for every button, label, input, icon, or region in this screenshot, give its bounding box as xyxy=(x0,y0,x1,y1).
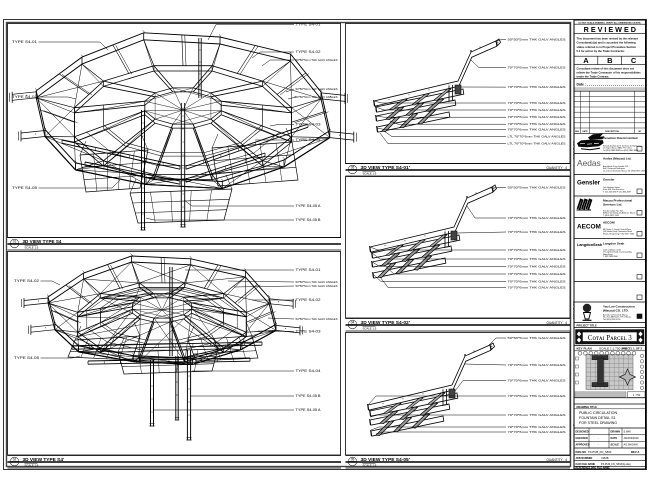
svg-text:TYPE S4-02: TYPE S4-02 xyxy=(12,95,37,99)
svg-text:TYPE S4-01: TYPE S4-01 xyxy=(12,40,37,44)
svg-text:C: C xyxy=(631,56,637,65)
svg-text:05: 05 xyxy=(351,166,355,170)
svg-text:Consultant review of this docu: Consultant review of this document does … xyxy=(577,67,635,71)
svg-text:B: B xyxy=(607,56,613,65)
svg-text:TYPE S4-05: TYPE S4-05 xyxy=(12,186,37,190)
svg-text:LTL 70*70*6mm THK GALV ANGLES: LTL 70*70*6mm THK GALV ANGLES xyxy=(508,135,566,139)
svg-text:TYPE S4-03: TYPE S4-03 xyxy=(296,123,321,127)
svg-text:SCALE: SCALE xyxy=(611,444,620,447)
svg-text:DRAWN: DRAWN xyxy=(611,430,621,433)
svg-text:TYPE S4-05 B: TYPE S4-05 B xyxy=(296,218,321,222)
svg-text:DESCRIPTION: DESCRIPTION xyxy=(605,131,619,133)
svg-text:70*70*6mm THK GALV ANGLES: 70*70*6mm THK GALV ANGLES xyxy=(508,85,566,89)
svg-text:REV: REV xyxy=(575,131,580,133)
svg-text:3D VIEW TYPE S4-05': 3D VIEW TYPE S4-05' xyxy=(361,457,410,462)
svg-text:relieve the Trade Contractor o: relieve the Trade Contractor of his resp… xyxy=(577,71,642,75)
svg-text:R E V I E W E D: R E V I E W E D xyxy=(584,25,636,34)
svg-text:QUANTITY : 4: QUANTITY : 4 xyxy=(547,166,568,170)
svg-text:DWG NO: DWG NO xyxy=(576,451,587,454)
svg-text:TYPE S4-05 A: TYPE S4-05 A xyxy=(296,204,322,208)
svg-text:70*70*6mm THK GALV ANGLES: 70*70*6mm THK GALV ANGLES xyxy=(508,394,566,398)
svg-text:Shatin, Hong Kong T: 852 2317: Shatin, Hong Kong T: 852 2317 7000 xyxy=(603,232,634,235)
svg-text:Consultant(s)(s) and is accord: Consultant(s)(s) and is accorded the fol… xyxy=(577,41,636,45)
svg-text:70*70*6mm THK GALV ANGLES: 70*70*6mm THK GALV ANGLES xyxy=(508,216,566,220)
svg-text:LTL 70*70*6mm THK GALV ANGLES: LTL 70*70*6mm THK GALV ANGLES xyxy=(508,142,566,146)
svg-text:TYPE S4-05 B: TYPE S4-05 B xyxy=(296,394,321,398)
svg-text:70*70*6mm THK GALV ANGLES: 70*70*6mm THK GALV ANGLES xyxy=(508,122,566,126)
svg-text:DATE: DATE xyxy=(582,130,588,133)
svg-text:Tel: (853) 2870 0790: Tel: (853) 2870 0790 xyxy=(603,319,620,321)
svg-text:QUANTITY : 4: QUANTITY : 4 xyxy=(547,458,568,462)
svg-text:TYPE S4-04: TYPE S4-04 xyxy=(296,369,321,373)
svg-text:70*70*6mm THK GALV ANGLES: 70*70*6mm THK GALV ANGLES xyxy=(508,280,566,284)
svg-text:TYPE S4-01: TYPE S4-01 xyxy=(296,268,321,272)
svg-text:01: 01 xyxy=(13,240,17,244)
svg-text:P3-PUB_FD_S504: P3-PUB_FD_S504 xyxy=(588,450,612,454)
svg-text:DRAWING TITLE: DRAWING TITLE xyxy=(577,405,598,409)
svg-text:70*70*6mm THK GALV ANGLES: 70*70*6mm THK GALV ANGLES xyxy=(508,101,566,105)
svg-text:CAD FILE NAME: CAD FILE NAME xyxy=(576,463,596,466)
svg-text:3D VIEW TYPE S4: 3D VIEW TYPE S4 xyxy=(23,239,63,244)
svg-text:70*70*6mm THK GALV ANGLES: 70*70*6mm THK GALV ANGLES xyxy=(508,257,566,261)
svg-text:50*50*5mm THK GALV ANGLES: 50*50*5mm THK GALV ANGLES xyxy=(296,87,338,91)
svg-text:70*70*6mm THK GALV ANGLES: 70*70*6mm THK GALV ANGLES xyxy=(508,66,566,70)
svg-text:TYPE S4-05: TYPE S4-05 xyxy=(14,356,39,360)
svg-text:70*70*6mm THK GALV ANGLES: 70*70*6mm THK GALV ANGLES xyxy=(508,425,566,429)
svg-text:PARCEL 1, OF 3: PARCEL 1, OF 3 xyxy=(622,347,642,351)
svg-text:DESIGNED: DESIGNED xyxy=(576,430,589,433)
svg-text:SCALE 1:5: SCALE 1:5 xyxy=(363,327,377,331)
svg-text:70*70*6mm THK GALV ANGLES: 70*70*6mm THK GALV ANGLES xyxy=(508,230,566,234)
svg-text:70*70*6mm THK GALV ANGLES: 70*70*6mm THK GALV ANGLES xyxy=(508,413,566,417)
svg-text:3D VIEW TYPE S4-01': 3D VIEW TYPE S4-01' xyxy=(361,165,410,170)
svg-text:SCALE 1:5: SCALE 1:5 xyxy=(363,172,377,176)
svg-text:Gensler: Gensler xyxy=(577,180,601,187)
svg-text:3D VIEW TYPE S4-02': 3D VIEW TYPE S4-02' xyxy=(361,320,410,325)
svg-text:-: - xyxy=(598,444,599,447)
svg-text:70*70*6mm THK GALV ANGLES: 70*70*6mm THK GALV ANGLES xyxy=(508,430,566,434)
svg-text:12 andar, 1201-1202, Macau Te: 12 andar, 1201-1202, Macau Tel: (853) 28… xyxy=(603,169,645,172)
svg-text:S.WAI: S.WAI xyxy=(624,429,632,433)
svg-text:50*50*5mm THK GALV ANGLES: 50*50*5mm THK GALV ANGLES xyxy=(508,186,566,190)
svg-text:70*70*6mm THK GALV ANGLES: 70*70*6mm THK GALV ANGLES xyxy=(508,115,566,119)
svg-text:REV A: REV A xyxy=(631,450,639,454)
svg-text:P3-PUB_FD_S503(A).dwg: P3-PUB_FD_S503(A).dwg xyxy=(601,463,631,466)
svg-text:Services Ltd.: Services Ltd. xyxy=(603,202,622,206)
svg-text:FOUNTAIN DETAIL S1: FOUNTAIN DETAIL S1 xyxy=(579,416,616,420)
svg-text:APPROVED: APPROVED xyxy=(576,444,590,447)
svg-text:70*70*6mm THK GALV ANGLES: 70*70*6mm THK GALV ANGLES xyxy=(508,265,566,269)
svg-text:Date :: Date : xyxy=(577,83,586,87)
svg-text:Aedas (Macau) Ltd.: Aedas (Macau) Ltd. xyxy=(603,157,632,161)
svg-text:LangdonSeah: LangdonSeah xyxy=(577,243,603,247)
svg-text:KEY PLAN: KEY PLAN xyxy=(577,347,592,351)
svg-text:REFERENCE DRG FILE NAME: REFERENCE DRG FILE NAME xyxy=(576,467,611,470)
svg-text:QUANTITY : 4: QUANTITY : 4 xyxy=(547,321,568,325)
svg-text:70*70*6mm THK GALV ANGLES: 70*70*6mm THK GALV ANGLES xyxy=(508,379,566,383)
svg-text:50*50*5mm THK GALV ANGLES: 50*50*5mm THK GALV ANGLES xyxy=(296,284,338,288)
svg-text:TYPE S4-05 A: TYPE S4-05 A xyxy=(296,408,322,412)
svg-text:50*50*5mm THK GALV ANGLES: 50*50*5mm THK GALV ANGLES xyxy=(296,58,338,62)
svg-text:AECOM: AECOM xyxy=(603,221,615,225)
svg-text:70*70*6mm THK GALV ANGLES: 70*70*6mm THK GALV ANGLES xyxy=(508,363,566,367)
svg-text:under the Trade Contract.: under the Trade Contract. xyxy=(577,75,610,79)
svg-text:SCALE 1:5: SCALE 1:5 xyxy=(363,464,377,468)
svg-text:Venetian Orient Limited: Venetian Orient Limited xyxy=(603,136,638,140)
svg-text:DATE: DATE xyxy=(611,437,618,440)
svg-text:TYPE S4-02: TYPE S4-02 xyxy=(14,279,39,283)
svg-text:05: 05 xyxy=(351,458,355,462)
svg-text:CHECKED: CHECKED xyxy=(576,437,589,440)
svg-text:3152B: 3152B xyxy=(601,456,609,460)
svg-text:JOB NUMBER: JOB NUMBER xyxy=(576,457,593,460)
svg-text:PUBLIC CIRCULATION: PUBLIC CIRCULATION xyxy=(579,411,617,415)
svg-text:(Macau) CO. LTD.: (Macau) CO. LTD. xyxy=(603,308,629,312)
svg-text:50*50*5mm THK GALV ANGLES: 50*50*5mm THK GALV ANGLES xyxy=(296,317,338,321)
svg-text:Langdon Seah: Langdon Seah xyxy=(603,242,624,246)
svg-text:70*70*6mm THK GALV ANGLES: 70*70*6mm THK GALV ANGLES xyxy=(508,108,566,112)
svg-text:70*70*6mm THK GALV ANGLES: 70*70*6mm THK GALV ANGLES xyxy=(508,286,566,290)
svg-text:JAN/03/2019: JAN/03/2019 xyxy=(624,436,640,440)
svg-text:FOR STEEL DRAWING: FOR STEEL DRAWING xyxy=(579,421,617,425)
svg-text:T: (853) 2871 5995: T: (853) 2871 5995 xyxy=(603,215,619,217)
svg-text:5.4 for action by the Trade Co: 5.4 for action by the Trade Contractor. xyxy=(577,49,626,53)
svg-text:TYPE S4-02: TYPE S4-02 xyxy=(296,50,321,54)
svg-text:T: 415.433.3700 F: 415.836.45: T: 415.433.3700 F: 415.836.4599 xyxy=(603,191,631,193)
svg-text:TYPE S4-01: TYPE S4-01 xyxy=(296,23,321,27)
svg-text:PROJECT TITLE: PROJECT TITLE xyxy=(577,323,597,327)
svg-text:TYPE S4-02: TYPE S4-02 xyxy=(296,298,321,302)
svg-text:50*50*5mm THK GALV ANGLES: 50*50*5mm THK GALV ANGLES xyxy=(508,336,566,340)
svg-text:SCALE 1:5: SCALE 1:5 xyxy=(25,464,39,468)
svg-text:T: 852 2830 3500: T: 852 2830 3500 xyxy=(603,256,618,258)
svg-text:70*70*6mm THK GALV ANGLES: 70*70*6mm THK GALV ANGLES xyxy=(508,248,566,252)
svg-text:This document has been revised: This document has been revised by the re… xyxy=(577,37,638,41)
svg-text:50*50*5mm THK GALV ANGLES: 50*50*5mm THK GALV ANGLES xyxy=(508,37,566,41)
svg-text:TYPE S4-03: TYPE S4-03 xyxy=(296,330,321,334)
svg-text:Tel:(853) 2882 8888 Fax:(853): Tel:(853) 2882 8888 Fax:(853) 2882 8889 xyxy=(603,150,638,152)
svg-text:BY: BY xyxy=(639,131,642,133)
svg-text:Cᴏᴛᴀɪ Pᴀʀᴄᴇʟ 3: Cᴏᴛᴀɪ Pᴀʀᴄᴇʟ 3 xyxy=(588,334,632,342)
svg-text:AECOM: AECOM xyxy=(577,224,601,231)
svg-text:3D VIEW TYPE S4': 3D VIEW TYPE S4' xyxy=(23,457,65,462)
svg-text:AS SHOWN: AS SHOWN xyxy=(624,443,638,447)
svg-text:Gensler: Gensler xyxy=(603,178,615,182)
svg-text:TYPE S4-04: TYPE S4-04 xyxy=(296,138,321,142)
svg-text:SCALE 1:5: SCALE 1:5 xyxy=(25,246,39,250)
svg-text:04: 04 xyxy=(351,321,355,325)
svg-text:Aedas: Aedas xyxy=(577,158,601,168)
svg-text:02: 02 xyxy=(13,458,17,462)
svg-text:70*70*6mm THK GALV ANGLES: 70*70*6mm THK GALV ANGLES xyxy=(508,272,566,276)
svg-text:status referred to in Project: status referred to in Project Procedure … xyxy=(577,45,637,49)
svg-text:A: A xyxy=(583,56,589,65)
svg-text:1 : 750: 1 : 750 xyxy=(633,394,641,397)
svg-text:50*50*5mm THK GALV ANGLES: 50*50*5mm THK GALV ANGLES xyxy=(296,95,338,99)
svg-text:70*70*6mm THK GALV ANGLES: 70*70*6mm THK GALV ANGLES xyxy=(508,128,566,132)
svg-text:-: - xyxy=(598,437,599,440)
